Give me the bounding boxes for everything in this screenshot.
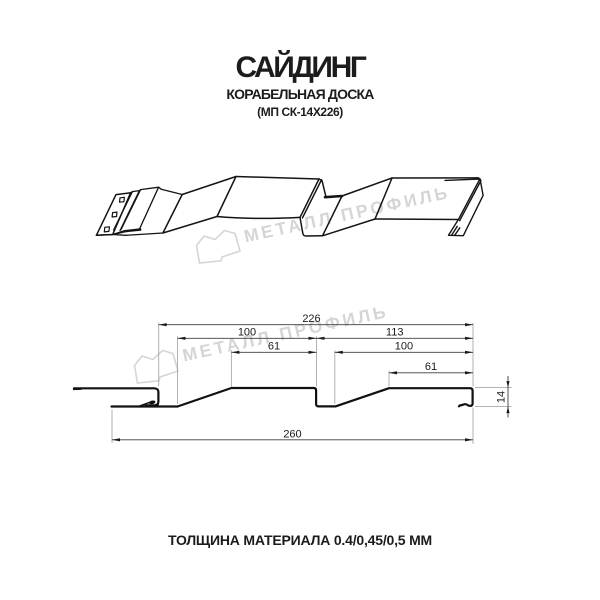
svg-text:61: 61 — [268, 341, 280, 353]
svg-text:САЙДИНГ: САЙДИНГ — [236, 50, 367, 84]
svg-text:260: 260 — [283, 429, 301, 441]
svg-text:61: 61 — [425, 361, 437, 373]
svg-text:ТОЛЩИНА МАТЕРИАЛА 0.4/0,45/0,5: ТОЛЩИНА МАТЕРИАЛА 0.4/0,45/0,5 ММ — [168, 532, 432, 548]
svg-text:226: 226 — [302, 313, 320, 325]
svg-text:100: 100 — [395, 341, 413, 353]
svg-text:100: 100 — [238, 327, 256, 339]
svg-text:(МП СК-14Х226): (МП СК-14Х226) — [257, 105, 343, 119]
svg-text:113: 113 — [386, 327, 404, 339]
svg-text:14: 14 — [496, 391, 508, 403]
svg-text:КОРАБЕЛЬНАЯ ДОСКА: КОРАБЕЛЬНАЯ ДОСКА — [226, 86, 374, 102]
